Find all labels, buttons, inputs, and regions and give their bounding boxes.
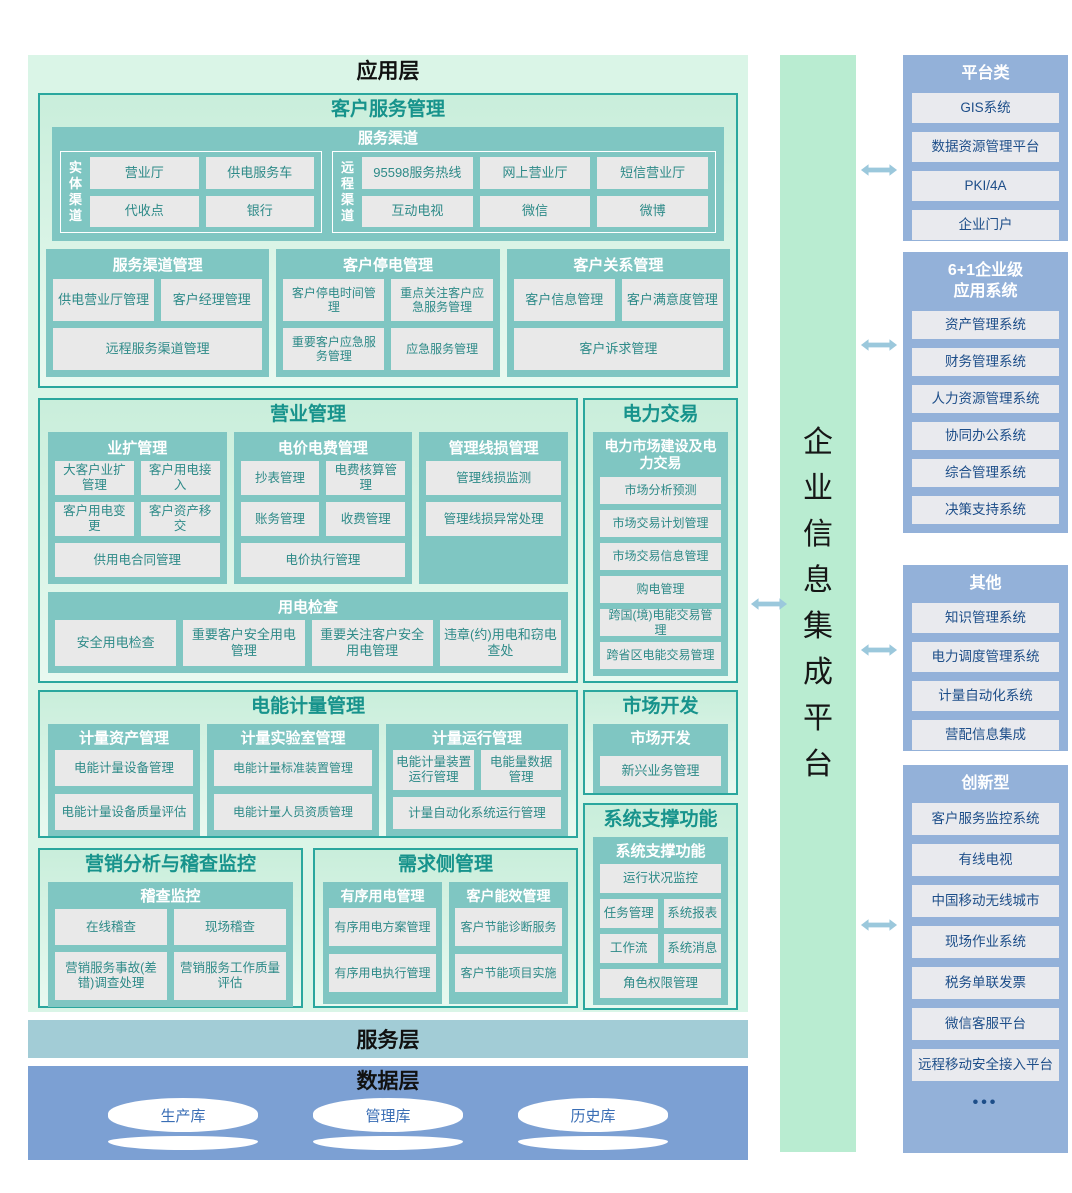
remote-channel-label: 远程渠道: [340, 160, 355, 224]
audit-monitoring-box: 稽查监控 在线稽查 现场稽查 营销服务事故(差错)调查处理 营销服务工作质量评估: [48, 882, 293, 1007]
power-inspection-row: 安全用电检查 重要客户安全用电管理 重要关注客户安全用电管理 违章(约)用电和窃…: [55, 620, 561, 666]
marketing-analysis-section: 营销分析与稽查监控 稽查监控 在线稽查 现场稽查 营销服务事故(差错)调查处理 …: [38, 848, 303, 1008]
crm-grid: 客户信息管理 客户满意度管理 客户诉求管理: [514, 279, 723, 370]
bidirectional-arrow-icon: [860, 338, 898, 352]
function-item: 重要客户安全用电管理: [183, 620, 304, 666]
business-management-groups: 业扩管理 大客户业扩管理 客户用电接入 客户用电变更 客户资产移交 供用电合同管…: [48, 432, 568, 584]
outage-management-box: 客户停电管理 客户停电时间管理 重点关注客户应急服务管理 重要客户应急服务管理 …: [276, 249, 499, 377]
database-cylinder-base: [313, 1136, 463, 1150]
expansion-management-box: 业扩管理 大客户业扩管理 客户用电接入 客户用电变更 客户资产移交 供用电合同管…: [48, 432, 227, 584]
database-cylinder-base: [518, 1136, 668, 1150]
customer-efficiency-title: 客户能效管理: [455, 885, 562, 908]
demand-side-title: 需求侧管理: [315, 850, 576, 880]
enterprise-systems-title: 6+1企业级 应用系统: [912, 260, 1059, 302]
channel-item: 微信: [480, 196, 591, 228]
metering-operation-title: 计量运行管理: [393, 727, 561, 750]
function-item: 现场稽查: [174, 909, 286, 945]
system-item: 资产管理系统: [912, 311, 1059, 339]
function-item: 运行状况监控: [600, 864, 721, 893]
function-item: 抄表管理: [241, 461, 320, 495]
channel-management-box: 服务渠道管理 供电营业厅管理 客户经理管理 远程服务渠道管理: [46, 249, 269, 377]
database-cylinder: 生产库: [108, 1098, 258, 1150]
system-item: 计量自动化系统: [912, 681, 1059, 711]
data-layer-title: 数据层: [28, 1066, 748, 1098]
function-item: 客户诉求管理: [514, 328, 723, 370]
platform-systems-title: 平台类: [912, 63, 1059, 84]
system-item: 中国移动无线城市: [912, 885, 1059, 917]
channel-item: 代收点: [90, 196, 199, 228]
power-inspection-title: 用电检查: [55, 596, 561, 620]
customer-service-subboxes: 服务渠道管理 供电营业厅管理 客户经理管理 远程服务渠道管理 客户停电管理 客户…: [46, 249, 730, 377]
system-item: 微信客服平台: [912, 1008, 1059, 1040]
function-item: 客户停电时间管理: [283, 279, 384, 321]
customer-service-section: 客户服务管理 服务渠道 实体渠道 营业厅 供电服务车 代收点 银行 远程渠: [38, 93, 738, 388]
market-development-box: 市场开发 新兴业务管理: [593, 724, 728, 793]
channel-item: 短信营业厅: [597, 157, 708, 189]
function-item: 电能计量人员资质管理: [214, 794, 372, 830]
innovative-systems-title: 创新型: [912, 773, 1059, 794]
metering-asset-grid: 电能计量设备管理 电能计量设备质量评估: [55, 750, 193, 830]
function-item: 客户用电变更: [55, 502, 134, 536]
function-item: 安全用电检查: [55, 620, 176, 666]
crm-title: 客户关系管理: [514, 253, 723, 279]
business-management-section: 营业管理 业扩管理 大客户业扩管理 客户用电接入 客户用电变更 客户资产移交 供…: [38, 398, 578, 683]
demand-side-groups: 有序用电管理 有序用电方案管理 有序用电执行管理 客户能效管理 客户节能诊断服务…: [323, 882, 568, 1004]
channel-item: 银行: [206, 196, 315, 228]
function-item: 重点关注客户应急服务管理: [391, 279, 492, 321]
function-item: 在线稽查: [55, 909, 167, 945]
function-item: 有序用电执行管理: [329, 954, 436, 992]
outage-management-grid: 客户停电时间管理 重点关注客户应急服务管理 重要客户应急服务管理 应急服务管理: [283, 279, 492, 370]
function-item: 工作流: [600, 934, 658, 963]
system-support-box: 系统支撑功能 运行状况监控 任务管理 系统报表 工作流 系统消息 角色权限管理: [593, 837, 728, 1005]
system-item: 税务单联发票: [912, 967, 1059, 999]
function-item: 客户经理管理: [161, 279, 262, 321]
audit-monitoring-title: 稽查监控: [55, 885, 286, 909]
market-development-group-title: 市场开发: [600, 727, 721, 751]
function-item: 市场分析预测: [600, 477, 721, 504]
function-item: 远程服务渠道管理: [53, 328, 262, 370]
channel-item: 营业厅: [90, 157, 199, 189]
function-item: 客户满意度管理: [622, 279, 723, 321]
system-item: GIS系统: [912, 93, 1059, 123]
power-inspection-box: 用电检查 安全用电检查 重要客户安全用电管理 重要关注客户安全用电管理 违章(约…: [48, 592, 568, 673]
line-loss-title: 管理线损管理: [426, 436, 561, 461]
orderly-power-box: 有序用电管理 有序用电方案管理 有序用电执行管理: [323, 882, 442, 1004]
audit-grid: 在线稽查 现场稽查 营销服务事故(差错)调查处理 营销服务工作质量评估: [55, 909, 286, 1000]
function-item: 跨国(境)电能交易管理: [600, 609, 721, 636]
outage-management-title: 客户停电管理: [283, 253, 492, 279]
power-trading-title: 电力交易: [585, 400, 736, 430]
function-item: 重要关注客户安全用电管理: [312, 620, 433, 666]
bidirectional-arrow-icon: [860, 918, 898, 932]
function-item: 重要客户应急服务管理: [283, 328, 384, 370]
line-loss-grid: 管理线损监测 管理线损异常处理: [426, 461, 561, 536]
function-item: 购电管理: [600, 576, 721, 603]
system-item: 现场作业系统: [912, 926, 1059, 958]
database-cylinder-base: [108, 1136, 258, 1150]
physical-channel-grid: 营业厅 供电服务车 代收点 银行: [90, 157, 314, 227]
physical-channel-label: 实体渠道: [68, 160, 83, 224]
customer-service-title: 客户服务管理: [40, 95, 736, 125]
power-trading-grid: 市场分析预测 市场交易计划管理 市场交易信息管理 购电管理 跨国(境)电能交易管…: [600, 477, 721, 669]
system-support-grid: 运行状况监控 任务管理 系统报表 工作流 系统消息 角色权限管理: [600, 864, 721, 998]
channel-item: 互动电视: [362, 196, 473, 228]
marketing-analysis-title: 营销分析与稽查监控: [40, 850, 301, 880]
demand-side-section: 需求侧管理 有序用电管理 有序用电方案管理 有序用电执行管理 客户能效管理 客户…: [313, 848, 578, 1008]
line-loss-management-box: 管理线损管理 管理线损监测 管理线损异常处理: [419, 432, 568, 584]
database-cylinder: 管理库: [313, 1098, 463, 1150]
service-channel-title: 服务渠道: [60, 127, 716, 151]
other-systems-title: 其他: [912, 573, 1059, 594]
metering-groups: 计量资产管理 电能计量设备管理 电能计量设备质量评估 计量实验室管理 电能计量标…: [48, 724, 568, 836]
physical-channel-group: 实体渠道 营业厅 供电服务车 代收点 银行: [60, 151, 322, 233]
system-item: 决策支持系统: [912, 496, 1059, 524]
power-trading-box: 电力市场建设及电力交易 市场分析预测 市场交易计划管理 市场交易信息管理 购电管…: [593, 432, 728, 676]
data-layer: 数据层 生产库 管理库 历史库: [28, 1066, 748, 1160]
function-item: 有序用电方案管理: [329, 908, 436, 946]
system-item: 协同办公系统: [912, 422, 1059, 450]
system-item: 知识管理系统: [912, 603, 1059, 633]
function-item: 系统报表: [664, 899, 722, 928]
expansion-management-title: 业扩管理: [55, 436, 220, 461]
function-item: 系统消息: [664, 934, 722, 963]
database-row: 生产库 管理库 历史库: [28, 1098, 748, 1150]
system-support-group-title: 系统支撑功能: [600, 840, 721, 864]
system-item: 有线电视: [912, 844, 1059, 876]
function-item: 管理线损异常处理: [426, 502, 561, 536]
function-item: 营销服务工作质量评估: [174, 952, 286, 1000]
metering-lab-grid: 电能计量标准装置管理 电能计量人员资质管理: [214, 750, 372, 830]
function-item: 客户用电接入: [141, 461, 220, 495]
function-item: 客户资产移交: [141, 502, 220, 536]
metering-lab-box: 计量实验室管理 电能计量标准装置管理 电能计量人员资质管理: [207, 724, 379, 836]
function-item: 新兴业务管理: [600, 756, 721, 786]
business-management-title: 营业管理: [40, 400, 576, 430]
integration-platform-title: 企业信息集成平台: [802, 420, 834, 788]
function-item: 计量自动化系统运行管理: [393, 797, 561, 829]
market-development-section: 市场开发 市场开发 新兴业务管理: [583, 690, 738, 795]
system-support-title: 系统支撑功能: [585, 805, 736, 835]
function-item: 收费管理: [326, 502, 405, 536]
function-item: 市场交易计划管理: [600, 510, 721, 537]
system-item: 综合管理系统: [912, 459, 1059, 487]
function-item: 客户信息管理: [514, 279, 615, 321]
system-item: 企业门户: [912, 210, 1059, 240]
system-item: PKI/4A: [912, 171, 1059, 201]
system-item: 客户服务监控系统: [912, 803, 1059, 835]
channel-management-grid: 供电营业厅管理 客户经理管理 远程服务渠道管理: [53, 279, 262, 370]
function-item: 电能量数据管理: [481, 750, 561, 790]
remote-channel-grid: 95598服务热线 网上营业厅 短信营业厅 互动电视 微信 微博: [362, 157, 708, 227]
function-item: 电价执行管理: [241, 543, 406, 577]
function-item: 电能计量设备质量评估: [55, 794, 193, 830]
database-label: 管理库: [313, 1098, 463, 1132]
bidirectional-arrow-icon: [750, 597, 788, 611]
tariff-grid: 抄表管理 电费核算管理 账务管理 收费管理 电价执行管理: [241, 461, 406, 577]
database-label: 历史库: [518, 1098, 668, 1132]
service-channel-box: 服务渠道 实体渠道 营业厅 供电服务车 代收点 银行 远程渠道: [52, 127, 724, 241]
system-item: 营配信息集成: [912, 720, 1059, 750]
metering-title: 电能计量管理: [40, 692, 576, 722]
function-item: 供用电合同管理: [55, 543, 220, 577]
database-cylinder: 历史库: [518, 1098, 668, 1150]
more-systems-ellipsis: •••: [912, 1094, 1059, 1112]
system-support-section: 系统支撑功能 系统支撑功能 运行状况监控 任务管理 系统报表 工作流 系统消息 …: [583, 803, 738, 1010]
service-layer: 服务层: [28, 1020, 748, 1058]
channel-item: 95598服务热线: [362, 157, 473, 189]
metering-asset-box: 计量资产管理 电能计量设备管理 电能计量设备质量评估: [48, 724, 200, 836]
function-item: 管理线损监测: [426, 461, 561, 495]
channel-management-title: 服务渠道管理: [53, 253, 262, 279]
tariff-management-box: 电价电费管理 抄表管理 电费核算管理 账务管理 收费管理 电价执行管理: [234, 432, 413, 584]
orderly-power-title: 有序用电管理: [329, 885, 436, 908]
service-layer-title: 服务层: [357, 1024, 420, 1054]
integration-platform-bar: 企业信息集成平台: [780, 55, 856, 1152]
function-item: 角色权限管理: [600, 969, 721, 998]
metering-lab-title: 计量实验室管理: [214, 727, 372, 750]
function-item: 大客户业扩管理: [55, 461, 134, 495]
system-item: 远程移动安全接入平台: [912, 1049, 1059, 1081]
metering-operation-box: 计量运行管理 电能计量装置运行管理 电能量数据管理 计量自动化系统运行管理: [386, 724, 568, 836]
channel-item: 网上营业厅: [480, 157, 591, 189]
function-item: 营销服务事故(差错)调查处理: [55, 952, 167, 1000]
metering-management-section: 电能计量管理 计量资产管理 电能计量设备管理 电能计量设备质量评估 计量实验室管…: [38, 690, 578, 838]
system-item: 财务管理系统: [912, 348, 1059, 376]
function-item: 账务管理: [241, 502, 320, 536]
function-item: 电能计量设备管理: [55, 750, 193, 786]
database-label: 生产库: [108, 1098, 258, 1132]
function-item: 跨省区电能交易管理: [600, 642, 721, 669]
channel-item: 微博: [597, 196, 708, 228]
function-item: 电能计量标准装置管理: [214, 750, 372, 786]
market-development-title: 市场开发: [585, 692, 736, 722]
power-trading-section: 电力交易 电力市场建设及电力交易 市场分析预测 市场交易计划管理 市场交易信息管…: [583, 398, 738, 683]
bidirectional-arrow-icon: [860, 643, 898, 657]
function-item: 违章(约)用电和窃电查处: [440, 620, 561, 666]
remote-channel-group: 远程渠道 95598服务热线 网上营业厅 短信营业厅 互动电视 微信 微博: [332, 151, 716, 233]
function-item: 客户节能诊断服务: [455, 908, 562, 946]
metering-asset-title: 计量资产管理: [55, 727, 193, 750]
system-item: 人力资源管理系统: [912, 385, 1059, 413]
system-item: 电力调度管理系统: [912, 642, 1059, 672]
expansion-grid: 大客户业扩管理 客户用电接入 客户用电变更 客户资产移交 供用电合同管理: [55, 461, 220, 577]
customer-efficiency-grid: 客户节能诊断服务 客户节能项目实施: [455, 908, 562, 992]
function-item: 供电营业厅管理: [53, 279, 154, 321]
application-layer: 应用层 客户服务管理 服务渠道 实体渠道 营业厅 供电服务车 代收点 银行: [28, 55, 748, 1012]
service-channel-groups: 实体渠道 营业厅 供电服务车 代收点 银行 远程渠道 95598服务热线 网上营…: [60, 151, 716, 233]
function-item: 任务管理: [600, 899, 658, 928]
function-item: 应急服务管理: [391, 328, 492, 370]
customer-efficiency-box: 客户能效管理 客户节能诊断服务 客户节能项目实施: [449, 882, 568, 1004]
function-item: 电能计量装置运行管理: [393, 750, 474, 790]
enterprise-systems-box: 6+1企业级 应用系统 资产管理系统 财务管理系统 人力资源管理系统 协同办公系…: [903, 252, 1068, 533]
tariff-management-title: 电价电费管理: [241, 436, 406, 461]
channel-item: 供电服务车: [206, 157, 315, 189]
innovative-systems-box: 创新型 客户服务监控系统 有线电视 中国移动无线城市 现场作业系统 税务单联发票…: [903, 765, 1068, 1153]
crm-box: 客户关系管理 客户信息管理 客户满意度管理 客户诉求管理: [507, 249, 730, 377]
application-layer-title: 应用层: [28, 55, 748, 89]
bidirectional-arrow-icon: [860, 163, 898, 177]
power-trading-group-title: 电力市场建设及电力交易: [600, 435, 721, 477]
metering-operation-row: 电能计量装置运行管理 电能量数据管理: [393, 750, 561, 790]
function-item: 客户节能项目实施: [455, 954, 562, 992]
function-item: 电费核算管理: [326, 461, 405, 495]
system-item: 数据资源管理平台: [912, 132, 1059, 162]
orderly-power-grid: 有序用电方案管理 有序用电执行管理: [329, 908, 436, 992]
function-item: 市场交易信息管理: [600, 543, 721, 570]
other-systems-box: 其他 知识管理系统 电力调度管理系统 计量自动化系统 营配信息集成: [903, 565, 1068, 751]
platform-systems-box: 平台类 GIS系统 数据资源管理平台 PKI/4A 企业门户: [903, 55, 1068, 241]
